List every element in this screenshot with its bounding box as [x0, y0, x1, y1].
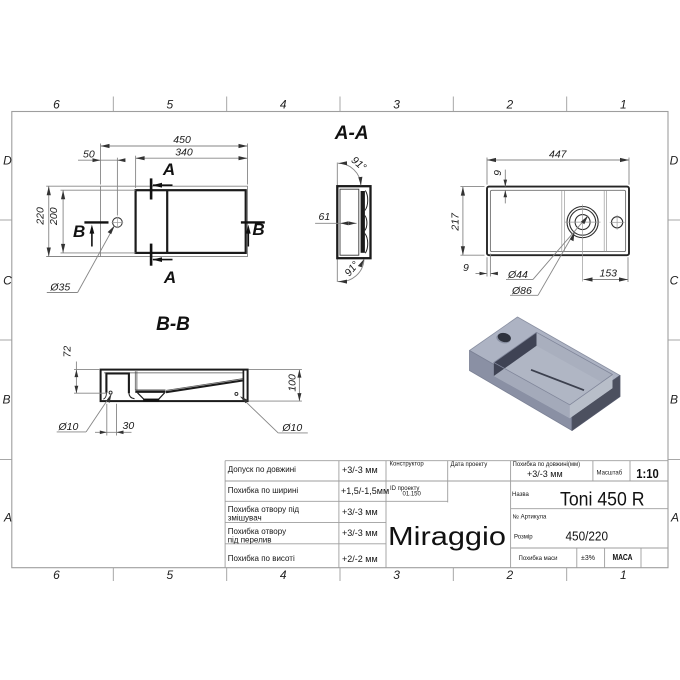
svg-text:450/220: 450/220: [566, 529, 609, 544]
svg-text:Ø10: Ø10: [281, 422, 302, 434]
svg-text:B: B: [73, 222, 85, 241]
svg-text:61: 61: [319, 211, 331, 223]
svg-text:1: 1: [620, 98, 627, 112]
svg-text:5: 5: [166, 568, 173, 582]
svg-text:C: C: [670, 274, 679, 288]
svg-text:9: 9: [463, 262, 469, 274]
svg-text:5: 5: [166, 98, 173, 112]
svg-text:100: 100: [286, 374, 298, 392]
svg-text:A: A: [163, 268, 176, 287]
svg-text:6: 6: [53, 98, 60, 112]
svg-text:6: 6: [53, 568, 60, 582]
svg-text:340: 340: [175, 147, 193, 159]
svg-text:4: 4: [280, 568, 287, 582]
svg-text:Miraggio: Miraggio: [388, 521, 506, 551]
svg-text:Похибка маси: Похибка маси: [519, 556, 558, 562]
svg-text:153: 153: [600, 267, 618, 279]
svg-text:72: 72: [62, 346, 74, 358]
svg-text:A-A: A-A: [334, 123, 369, 144]
svg-text:МАСА: МАСА: [613, 552, 633, 562]
svg-text:A: A: [670, 511, 679, 525]
svg-text:A: A: [3, 511, 12, 525]
svg-text:50: 50: [83, 149, 95, 161]
svg-text:+3/-3 мм: +3/-3 мм: [342, 507, 378, 517]
svg-text:447: 447: [549, 148, 568, 160]
svg-text:змішувач: змішувач: [228, 513, 262, 522]
svg-text:B: B: [252, 220, 264, 239]
svg-text:Ø35: Ø35: [49, 282, 70, 294]
svg-text:9: 9: [492, 170, 504, 176]
svg-text:1: 1: [620, 568, 627, 582]
svg-text:2: 2: [506, 568, 514, 582]
svg-text:3: 3: [393, 98, 400, 112]
svg-text:A: A: [162, 160, 175, 179]
svg-text:220: 220: [35, 207, 47, 226]
svg-text:Toni 450 R: Toni 450 R: [560, 489, 645, 510]
svg-text:Розмір: Розмір: [514, 535, 533, 541]
svg-text:+1,5/-1,5мм: +1,5/-1,5мм: [341, 486, 389, 496]
svg-text:Конструктор: Конструктор: [390, 462, 425, 468]
svg-text:±3%: ±3%: [581, 555, 595, 562]
svg-text:+3/-3 мм: +3/-3 мм: [342, 528, 378, 538]
svg-text:D: D: [670, 154, 679, 168]
svg-text:під перелив: під перелив: [228, 535, 272, 544]
svg-text:Дата проекту: Дата проекту: [451, 462, 488, 468]
svg-text:Похибка по ширині: Похибка по ширині: [228, 486, 299, 495]
svg-text:B: B: [2, 393, 10, 407]
svg-text:+3/-3 мм: +3/-3 мм: [527, 469, 563, 479]
svg-text:C: C: [3, 274, 12, 288]
svg-text:1:10: 1:10: [636, 466, 659, 481]
svg-text:3: 3: [393, 568, 400, 582]
svg-text:Масштаб: Масштаб: [597, 471, 623, 477]
svg-text:Ø10: Ø10: [58, 421, 79, 433]
svg-text:+3/-3 мм: +3/-3 мм: [342, 465, 378, 475]
svg-text:B: B: [670, 393, 678, 407]
svg-text:B-B: B-B: [156, 314, 190, 335]
svg-text:+2/-2 мм: +2/-2 мм: [342, 554, 378, 564]
svg-text:Ø44: Ø44: [507, 269, 528, 281]
svg-text:450: 450: [173, 134, 191, 146]
svg-text:200: 200: [48, 207, 60, 226]
svg-text:Похибка по довжині(мм): Похибка по довжині(мм): [513, 462, 581, 468]
svg-text:Ø86: Ø86: [511, 285, 532, 297]
svg-text:№ Артикула: № Артикула: [513, 514, 547, 521]
svg-text:Похибка по висоті: Похибка по висоті: [228, 554, 295, 563]
svg-text:217: 217: [450, 212, 462, 232]
svg-text:4: 4: [280, 98, 287, 112]
svg-text:30: 30: [123, 420, 135, 432]
svg-text:D: D: [3, 154, 12, 168]
svg-text:Допуск по довжині: Допуск по довжині: [228, 465, 296, 474]
svg-text:2: 2: [506, 98, 514, 112]
svg-text:01.150: 01.150: [403, 491, 422, 497]
svg-text:Назва: Назва: [512, 492, 529, 498]
